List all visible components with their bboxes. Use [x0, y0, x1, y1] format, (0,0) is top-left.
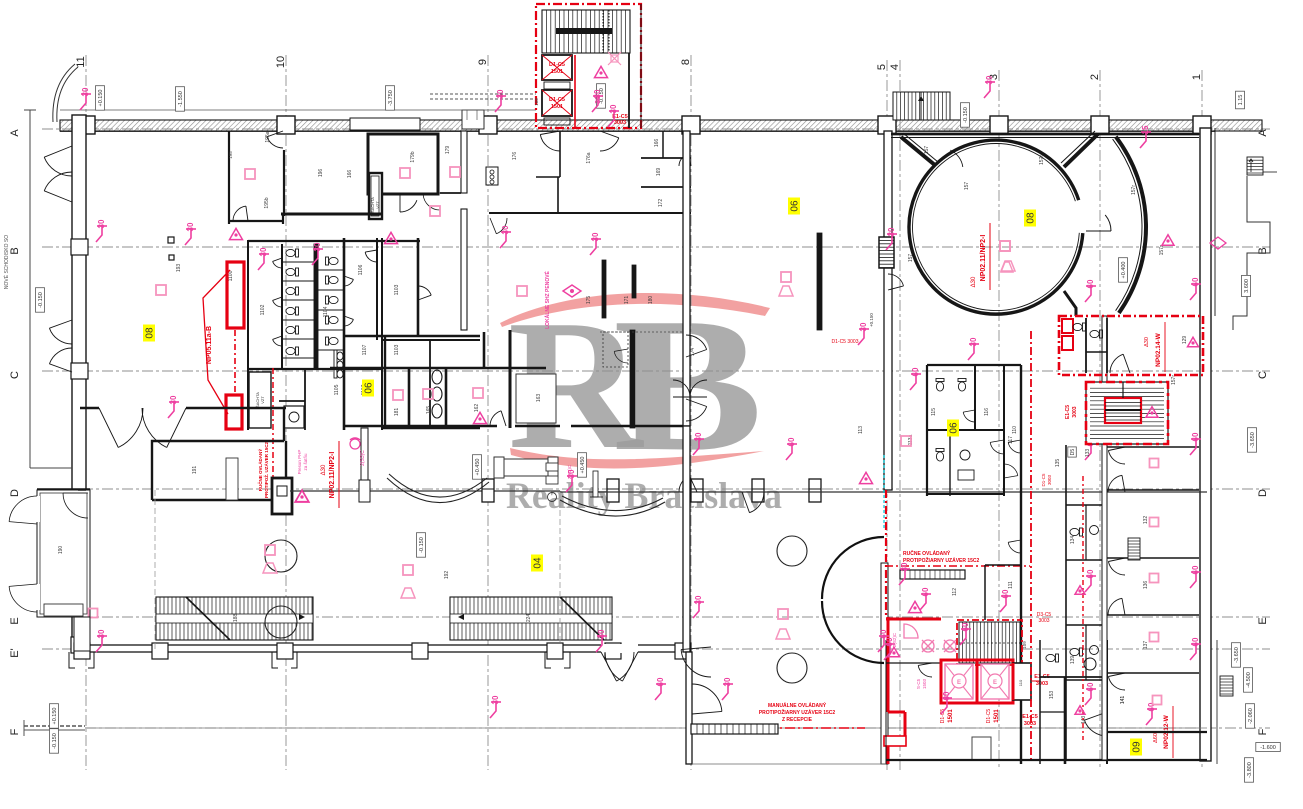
svg-text:30: 30 [887, 227, 896, 236]
svg-text:162: 162 [474, 404, 480, 413]
svg-text:-3.650: -3.650 [1234, 647, 1240, 663]
svg-text:PROTIPOŽIARNY UZÁVER 15C2: PROTIPOŽIARNY UZÁVER 15C2 [759, 708, 836, 716]
svg-text:Δ60: Δ60 [1153, 733, 1159, 743]
svg-text:09: 09 [1132, 741, 1143, 753]
svg-text:E': E' [9, 648, 21, 657]
svg-text:NP02.11/NP2-I: NP02.11/NP2-I [329, 452, 336, 499]
svg-text:-0.150: -0.150 [419, 537, 425, 553]
svg-text:60: 60 [1147, 702, 1156, 711]
svg-text:11: 11 [75, 56, 87, 67]
svg-text:E1-C5: E1-C5 [1022, 714, 1038, 720]
svg-text:60: 60 [1191, 637, 1200, 646]
svg-text:Z RECEPCIE: Z RECEPCIE [782, 717, 813, 723]
svg-text:153: 153 [1049, 691, 1055, 700]
svg-text:3003: 3003 [1038, 618, 1049, 624]
svg-text:D: D [1257, 489, 1269, 497]
svg-text:NOVÉ SCHODISKO SO: NOVÉ SCHODISKO SO [3, 235, 10, 289]
svg-text:190: 190 [58, 546, 64, 555]
svg-text:157r: 157r [1131, 185, 1137, 195]
svg-text:1103: 1103 [394, 284, 400, 295]
svg-text:60: 60 [879, 629, 888, 638]
svg-text:132: 132 [1143, 516, 1149, 525]
svg-text:08: 08 [1026, 212, 1037, 224]
svg-text:166: 166 [654, 139, 660, 148]
svg-text:C: C [1257, 371, 1269, 379]
svg-text:116: 116 [984, 408, 990, 416]
svg-text:D1-C5: D1-C5 [549, 97, 565, 103]
svg-text:A: A [9, 129, 21, 137]
svg-text:VZT: VZT [260, 396, 265, 404]
svg-text:30: 30 [969, 337, 978, 346]
svg-text:3003: 3003 [1072, 406, 1078, 417]
svg-text:110: 110 [1018, 679, 1023, 686]
svg-text:192: 192 [444, 571, 450, 580]
svg-text:+0.150: +0.150 [52, 708, 58, 725]
svg-text:NP05.11a-B: NP05.11a-B [206, 326, 213, 364]
svg-text:E: E [957, 680, 961, 686]
svg-text:165: 165 [426, 406, 432, 415]
svg-text:3003: 3003 [1024, 721, 1036, 727]
svg-text:171: 171 [624, 296, 630, 305]
svg-text:113: 113 [858, 426, 864, 434]
svg-text:F: F [9, 728, 21, 735]
svg-text:-3.800: -3.800 [1247, 762, 1253, 778]
svg-text:2(S3)C: 2(S3)C [360, 450, 366, 466]
svg-text:1501: 1501 [948, 709, 954, 723]
svg-text:30: 30 [595, 96, 602, 104]
svg-text:196: 196 [318, 169, 324, 178]
svg-text:180: 180 [648, 296, 654, 305]
svg-text:30: 30 [97, 219, 106, 228]
svg-text:30: 30 [609, 104, 618, 113]
svg-text:PROTIPOŽIARNY UZÁVER 15C2: PROTIPOŽIARNY UZÁVER 15C2 [903, 556, 980, 564]
svg-text:60: 60 [656, 677, 665, 686]
svg-text:166: 166 [534, 98, 539, 106]
svg-text:60: 60 [921, 587, 930, 596]
svg-text:5: 5 [876, 64, 888, 70]
svg-text:NP02.14-W: NP02.14-W [1155, 332, 1162, 366]
svg-text:RUČNE OVLÁDANÝ: RUČNE OVLÁDANÝ [903, 550, 951, 557]
svg-text:195a: 195a [265, 131, 271, 142]
svg-text:157r: 157r [1039, 155, 1045, 165]
svg-text:60: 60 [1086, 569, 1095, 578]
svg-text:110: 110 [1012, 426, 1018, 434]
svg-text:1503: 1503 [922, 678, 927, 689]
svg-text:-3.650: -3.650 [1250, 432, 1256, 448]
svg-text:166: 166 [347, 170, 353, 179]
svg-text:30: 30 [97, 629, 106, 638]
svg-text:1106: 1106 [358, 264, 364, 275]
svg-text:30: 30 [186, 222, 195, 231]
svg-text:30: 30 [259, 247, 268, 256]
svg-text:136: 136 [1143, 581, 1149, 590]
svg-text:111: 111 [1008, 581, 1014, 589]
svg-text:30: 30 [723, 677, 732, 686]
svg-text:2: 2 [1089, 74, 1101, 80]
svg-text:E: E [1257, 617, 1269, 624]
svg-text:1104: 1104 [323, 306, 329, 317]
svg-text:-3.750: -3.750 [388, 90, 394, 106]
svg-text:10: 10 [275, 56, 287, 68]
svg-text:181: 181 [394, 408, 400, 417]
svg-text:163: 163 [536, 394, 542, 403]
svg-text:30: 30 [496, 89, 505, 98]
svg-text:157: 157 [908, 254, 914, 263]
svg-text:30: 30 [81, 87, 90, 96]
svg-text:B: B [9, 247, 21, 254]
svg-text:1501: 1501 [551, 69, 563, 75]
svg-text:30: 30 [859, 322, 868, 331]
svg-text:133: 133 [1085, 449, 1091, 458]
svg-text:06: 06 [790, 200, 801, 212]
svg-text:D: D [9, 489, 21, 497]
svg-text:Presun PHP: Presun PHP [297, 450, 302, 475]
svg-text:+0.150: +0.150 [98, 90, 104, 107]
svg-text:-0.150: -0.150 [52, 733, 58, 749]
svg-text:60: 60 [961, 622, 970, 631]
svg-text:-1.600: -1.600 [1260, 745, 1276, 751]
svg-text:137: 137 [1143, 641, 1149, 650]
svg-text:8: 8 [680, 59, 692, 65]
svg-text:Δ30: Δ30 [971, 276, 977, 287]
svg-text:C: C [9, 371, 21, 379]
svg-text:PROTIPOŽ. UZÁVER 15C2: PROTIPOŽ. UZÁVER 15C2 [262, 442, 269, 499]
svg-text:179b: 179b [410, 151, 416, 162]
svg-text:129: 129 [1182, 336, 1188, 345]
svg-text:30: 30 [501, 225, 510, 234]
svg-text:B: B [1257, 247, 1269, 254]
svg-text:E: E [993, 680, 997, 686]
svg-text:135: 135 [1055, 459, 1061, 468]
svg-text:D1-C5: D1-C5 [986, 709, 992, 724]
svg-text:15: 15 [1141, 125, 1150, 134]
svg-text:112: 112 [952, 588, 958, 596]
svg-text:60: 60 [1001, 589, 1010, 598]
svg-text:08: 08 [145, 327, 156, 339]
svg-text:176: 176 [512, 152, 518, 161]
svg-text:-2.060: -2.060 [1248, 708, 1254, 724]
svg-text:60: 60 [1191, 432, 1200, 441]
svg-text:1.15: 1.15 [1238, 95, 1244, 106]
svg-text:30: 30 [597, 629, 606, 638]
svg-text:RUČNE OVLÁDANÝ: RUČNE OVLÁDANÝ [257, 449, 263, 492]
svg-text:117: 117 [1008, 436, 1014, 444]
svg-text:30: 30 [985, 75, 994, 84]
svg-text:157: 157 [924, 146, 930, 155]
svg-text:30: 30 [694, 595, 703, 604]
svg-text:30: 30 [491, 695, 500, 704]
svg-text:172: 172 [658, 199, 664, 208]
svg-text:3003: 3003 [1036, 681, 1048, 687]
svg-text:NP02.11/NP2-I: NP02.11/NP2-I [980, 235, 987, 282]
svg-text:Δ30: Δ30 [321, 464, 327, 475]
svg-text:60: 60 [1086, 682, 1095, 691]
svg-text:+0.150: +0.150 [869, 313, 874, 327]
svg-text:1103: 1103 [394, 344, 400, 355]
svg-text:Δ30: Δ30 [1144, 337, 1150, 347]
svg-text:109: 109 [1022, 641, 1027, 649]
svg-text:-0.150: -0.150 [38, 292, 44, 308]
svg-text:30: 30 [900, 562, 909, 571]
svg-text:1501: 1501 [551, 104, 563, 110]
svg-text:60: 60 [885, 637, 894, 646]
svg-text:224: 224 [526, 614, 532, 623]
svg-text:175: 175 [586, 296, 592, 305]
svg-text:1102: 1102 [260, 304, 266, 315]
svg-text:3.600: 3.600 [1244, 279, 1250, 293]
svg-text:D1-C5 3003: D1-C5 3003 [832, 339, 859, 345]
svg-text:D5: D5 [1070, 449, 1076, 456]
svg-text:30: 30 [591, 232, 600, 241]
svg-text:193: 193 [176, 264, 182, 273]
svg-text:60: 60 [911, 367, 920, 376]
svg-text:60: 60 [787, 437, 796, 446]
svg-text:-4.500: -4.500 [1246, 672, 1252, 688]
svg-text:za šatňu: za šatňu [303, 453, 308, 471]
svg-text:E1-C5: E1-C5 [1065, 405, 1071, 419]
svg-text:143: 143 [1081, 716, 1087, 725]
svg-text:9: 9 [477, 59, 489, 65]
svg-text:F: F [1257, 728, 1269, 735]
svg-text:134: 134 [1070, 536, 1076, 545]
svg-text:+0.400: +0.400 [1121, 262, 1127, 279]
svg-text:-0.150: -0.150 [963, 107, 969, 123]
svg-text:60: 60 [1191, 565, 1200, 574]
svg-text:06: 06 [949, 422, 960, 434]
svg-text:+0.450: +0.450 [580, 457, 586, 474]
svg-text:+0.450: +0.450 [475, 459, 481, 476]
svg-text:60: 60 [1086, 279, 1095, 288]
svg-text:D1-C5: D1-C5 [549, 62, 565, 68]
svg-text:4: 4 [889, 64, 901, 70]
svg-text:176a: 176a [586, 152, 592, 163]
svg-text:1107: 1107 [362, 344, 368, 355]
svg-text:D1-C5: D1-C5 [1041, 473, 1046, 487]
svg-text:04: 04 [533, 557, 544, 569]
svg-text:MANUÁLNE OVLÁDANÝ: MANUÁLNE OVLÁDANÝ [768, 702, 827, 709]
svg-text:30: 30 [169, 395, 178, 404]
svg-text:-1.550: -1.550 [178, 91, 184, 107]
svg-text:60: 60 [942, 691, 951, 700]
svg-text:E: E [9, 617, 21, 624]
svg-text:115: 115 [931, 408, 937, 416]
svg-text:60: 60 [1191, 277, 1200, 286]
svg-text:3003: 3003 [1047, 474, 1052, 485]
svg-text:30: 30 [567, 469, 576, 478]
svg-text:188: 188 [233, 614, 239, 623]
svg-text:3003: 3003 [614, 120, 626, 126]
svg-text:VZT: VZT [375, 201, 380, 209]
svg-text:195: 195 [228, 151, 233, 159]
svg-text:157: 157 [964, 182, 970, 191]
svg-text:174: 174 [690, 348, 696, 357]
svg-text:1: 1 [1191, 74, 1203, 80]
svg-text:195b: 195b [264, 197, 270, 208]
svg-text:1501: 1501 [994, 709, 1000, 723]
svg-text:191: 191 [192, 466, 198, 475]
svg-text:179: 179 [445, 146, 451, 155]
svg-text:30: 30 [694, 432, 703, 441]
svg-text:169: 169 [656, 168, 662, 177]
svg-text:141: 141 [1120, 696, 1126, 705]
svg-text:06: 06 [364, 382, 375, 394]
svg-text:139: 139 [1070, 656, 1076, 665]
svg-text:S-C5: S-C5 [916, 678, 921, 689]
svg-text:1105: 1105 [334, 384, 340, 395]
svg-text:30: 30 [313, 242, 322, 251]
svg-text:LOKÁLNE SHZ PENOVÉ: LOKÁLNE SHZ PENOVÉ [543, 270, 551, 328]
